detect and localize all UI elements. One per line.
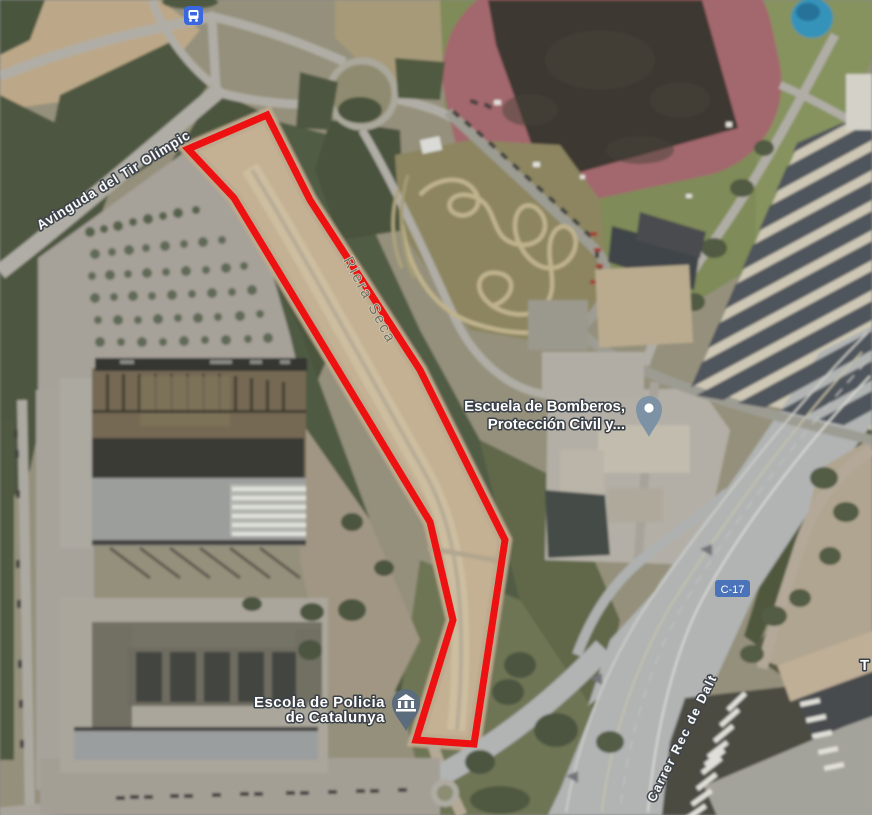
svg-text:Escuela de Bomberos,: Escuela de Bomberos,	[464, 398, 625, 415]
svg-text:Protección Civil y...: Protección Civil y...	[488, 416, 625, 433]
svg-text:T: T	[860, 657, 869, 674]
svg-text:de Catalunya: de Catalunya	[286, 709, 386, 726]
svg-text:C-17: C-17	[721, 584, 745, 596]
